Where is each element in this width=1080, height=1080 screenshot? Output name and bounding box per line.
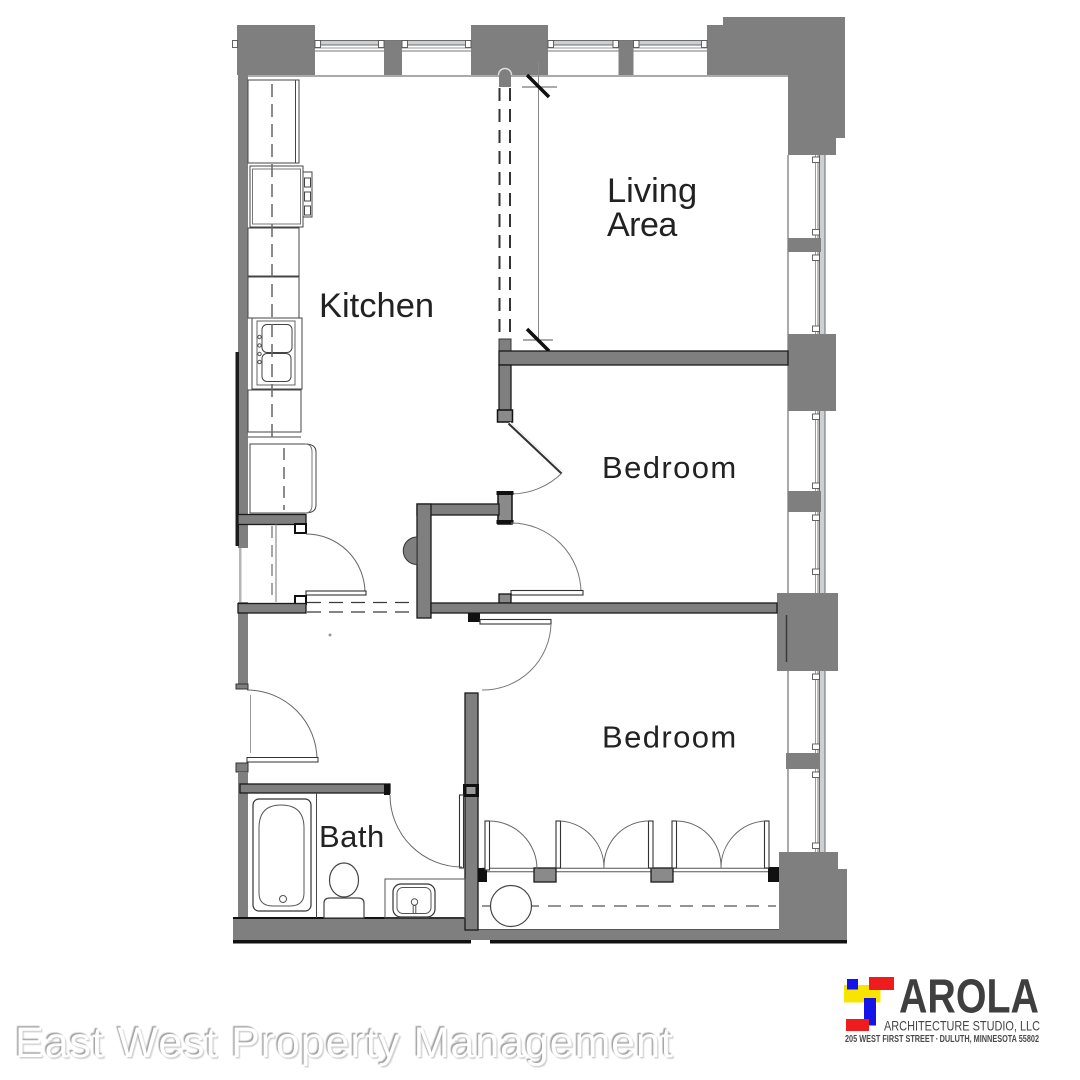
svg-text:ARCHITECTURE STUDIO, LLC: ARCHITECTURE STUDIO, LLC (884, 1018, 1040, 1034)
svg-text:AROLA: AROLA (899, 971, 1039, 1024)
svg-text:Area: Area (607, 206, 677, 244)
svg-text:Kitchen: Kitchen (319, 287, 434, 325)
svg-text:Bedroom: Bedroom (602, 450, 738, 485)
svg-text:205 WEST FIRST STREET · DULUTH: 205 WEST FIRST STREET · DULUTH, MINNESOT… (845, 1034, 1039, 1045)
svg-text:Bath: Bath (319, 819, 385, 854)
svg-text:Living: Living (607, 172, 697, 210)
svg-text:Bedroom: Bedroom (602, 720, 738, 755)
svg-text:East West Property Management: East West Property Management (15, 1019, 674, 1067)
